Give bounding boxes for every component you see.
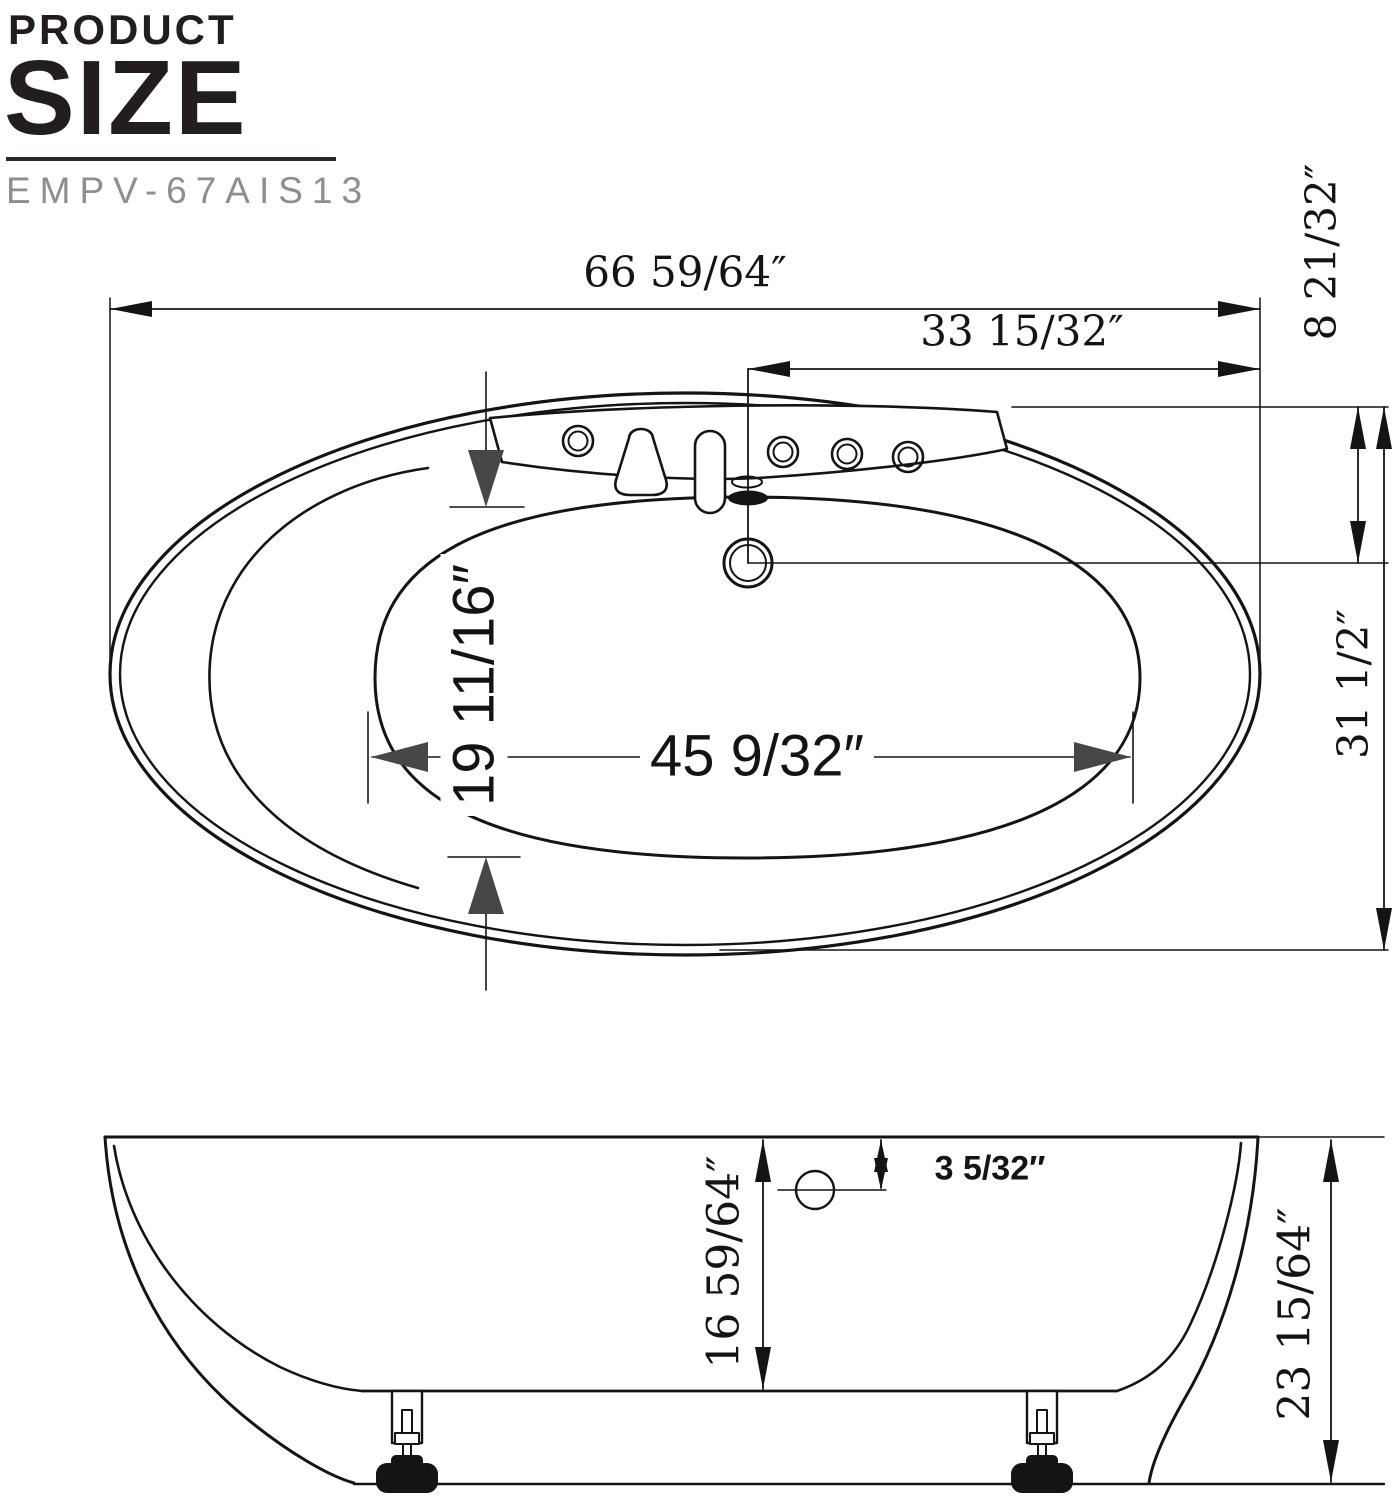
dim-label-overall-width: 31 1/2″ — [1329, 609, 1378, 759]
tub-top-view — [110, 393, 1260, 955]
arrowhead — [1218, 301, 1260, 317]
arrowhead — [748, 361, 790, 377]
dim-label-rim-to-drain: 8 21/32″ — [1297, 164, 1346, 341]
model-number: EMPV-67AIS13 — [6, 170, 371, 212]
outer-profile-right — [1149, 1137, 1258, 1483]
heavy-arrowhead — [468, 857, 504, 914]
arrowhead — [110, 301, 152, 317]
outer-profile-left — [105, 1137, 354, 1483]
rim-inner-edge-arc — [209, 468, 428, 888]
arrowhead — [874, 1158, 888, 1190]
drain-side-view — [778, 1171, 886, 1209]
dim-label-overall-length: 66 59/64″ — [583, 248, 787, 297]
top-view-dimensions — [110, 298, 1392, 990]
inner-profile-left — [114, 1146, 362, 1391]
dim-basin-depth — [755, 1140, 771, 1389]
dim-label-overall-height: 23 15/64″ — [1270, 1207, 1321, 1420]
page-title-line2: SIZE — [4, 38, 248, 159]
arrowhead — [1218, 361, 1260, 377]
dim-label-basin-depth: 16 59/64″ — [699, 1155, 750, 1368]
spout-lever-icon — [695, 431, 725, 513]
dim-label-drain-drop: 3 5/32″ — [935, 1150, 1046, 1189]
dim-label-length-to-drain: 33 15/32″ — [920, 307, 1124, 356]
inner-profile-right — [1117, 1143, 1241, 1391]
heavy-arrowhead — [468, 450, 504, 507]
title-divider — [6, 157, 336, 161]
arrowhead — [1350, 521, 1366, 563]
dim-overall-width — [720, 407, 1392, 950]
arrowhead — [1323, 1140, 1339, 1182]
arrowhead — [755, 1140, 771, 1182]
foot-pad — [1011, 1463, 1073, 1493]
foot-pad — [376, 1463, 438, 1493]
dim-overall-height — [1323, 1140, 1339, 1482]
heavy-arrowhead — [371, 742, 428, 772]
arrowhead — [1350, 407, 1366, 449]
adjustable-leg-left — [376, 1391, 438, 1493]
arrowhead — [1323, 1440, 1339, 1482]
arrowhead — [1376, 407, 1392, 449]
arrowhead — [1376, 908, 1392, 950]
dim-drain-drop — [874, 1140, 888, 1190]
dim-label-basin-width: 19 11/16″ — [441, 554, 508, 816]
tub-outer-rim-inner-line — [120, 403, 1250, 945]
dim-label-basin-length: 45 9/32″ — [640, 723, 874, 790]
arrowhead — [755, 1347, 771, 1389]
adjustable-leg-right — [1011, 1391, 1073, 1493]
product-size-drawing: PRODUCT SIZE EMPV-67AIS13 66 59/64″ 33 1… — [0, 0, 1392, 1500]
